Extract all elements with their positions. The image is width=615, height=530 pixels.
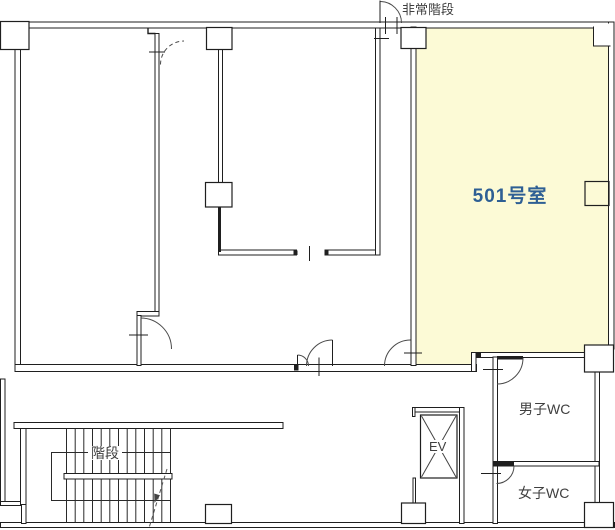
column [206, 505, 232, 524]
column [585, 503, 614, 528]
door-arc-womens-wc [497, 466, 515, 484]
column [207, 28, 233, 50]
elevator-label: EV [427, 440, 448, 453]
stair-direction-arrowhead [154, 494, 160, 504]
column [402, 503, 426, 524]
door-arc-upper-left-dashed [161, 41, 185, 65]
column [401, 28, 426, 49]
wall-jog [148, 28, 156, 34]
door-arc-mens-wc [497, 358, 523, 384]
column [1, 22, 30, 50]
stair-handrail [64, 474, 172, 480]
top-right-notch [594, 24, 613, 47]
column [206, 183, 233, 208]
mens-wc-label: 男子WC [519, 402, 570, 416]
stairs-label: 階段 [88, 446, 122, 460]
room-501-label: 501号室 [450, 187, 570, 206]
stairs [52, 429, 173, 529]
emergency-stairs-label: 非常階段 [402, 3, 454, 16]
column [585, 345, 614, 372]
door-arc-left-room [141, 318, 172, 349]
womens-wc-label: 女子WC [518, 486, 569, 500]
floor-plan: 非常階段 501号室 階段 EV 男子WC 女子WC [0, 0, 615, 530]
womens-wc-door-leaf [494, 462, 515, 467]
mens-wc-door-leaf [497, 356, 523, 360]
door-arc-emergency-exit [380, 2, 402, 24]
